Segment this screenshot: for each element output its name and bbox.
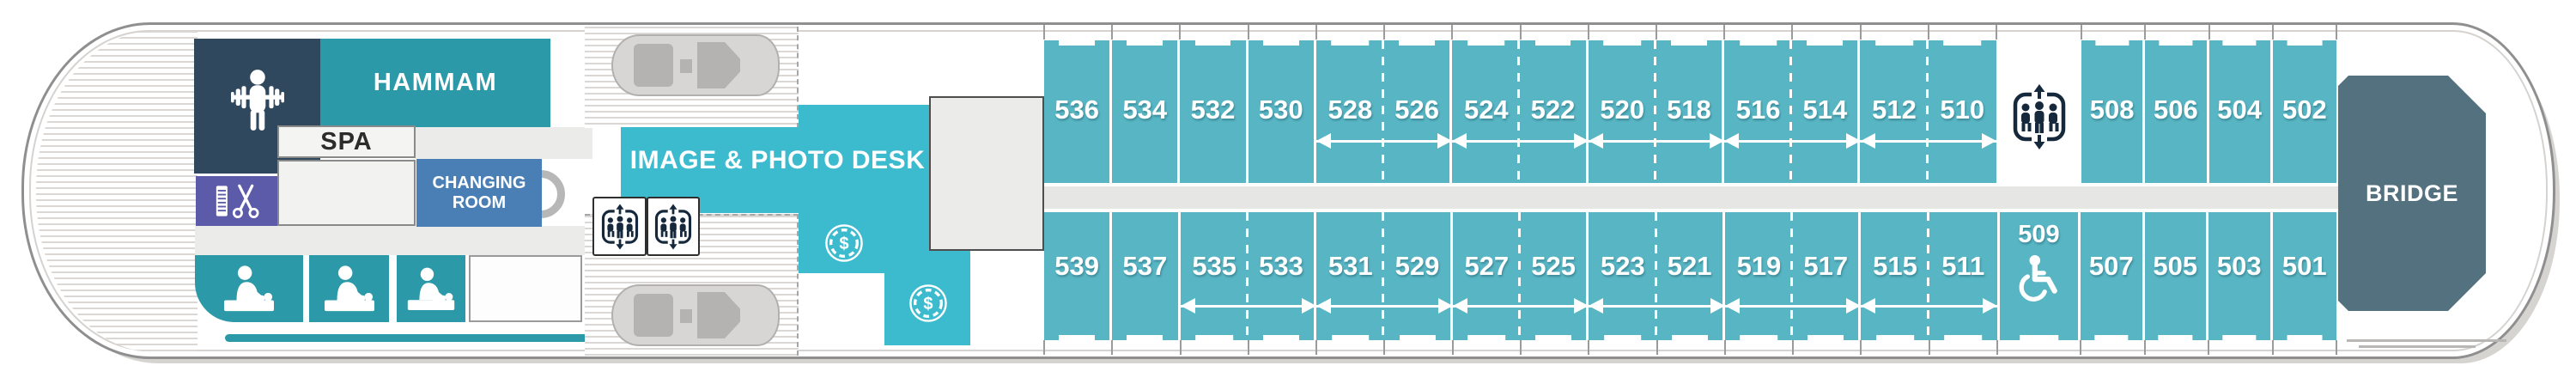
bulkhead-tick	[1383, 340, 1385, 355]
bulkhead-tick	[2336, 25, 2337, 40]
bulkhead-tick	[1723, 25, 1725, 40]
bulkhead-tick	[1588, 25, 1589, 40]
cabin-deck: 509 536534532530528526524522520518516514…	[0, 0, 2576, 390]
bulkhead-tick	[1043, 25, 1045, 40]
connecting-cabins-arrow	[1316, 140, 1996, 143]
bulkhead-tick	[1111, 25, 1113, 40]
cabin-527[interactable]: 527	[1453, 212, 1521, 340]
bulkhead-tick	[1315, 340, 1317, 355]
bulkhead-tick	[1724, 340, 1726, 355]
cabin-523[interactable]: 523	[1589, 212, 1656, 340]
bulkhead-tick	[1656, 340, 1658, 355]
cabin-519[interactable]: 519	[1725, 212, 1793, 340]
cabin-525[interactable]: 525	[1521, 212, 1589, 340]
arrowhead-icon	[1983, 298, 1997, 314]
bulkhead-tick	[1451, 25, 1453, 40]
bulkhead-tick	[1248, 340, 1249, 355]
bulkhead-tick	[1656, 25, 1657, 40]
cabin-503[interactable]: 503	[2208, 212, 2273, 340]
cabin-504[interactable]: 504	[2209, 40, 2273, 183]
arrowhead-icon	[1453, 298, 1467, 314]
cabin-502[interactable]: 502	[2273, 40, 2336, 183]
arrowhead-icon	[1316, 133, 1331, 149]
arrowhead-icon	[1302, 298, 1316, 314]
arrowhead-icon	[1846, 298, 1861, 314]
arrowhead-icon	[1861, 298, 1875, 314]
bulkhead-tick	[1520, 25, 1522, 40]
cabin-534[interactable]: 534	[1112, 40, 1180, 183]
bulkhead-tick	[2080, 340, 2081, 355]
arrowhead-icon	[1438, 298, 1453, 314]
cabin-520[interactable]: 520	[1589, 40, 1656, 183]
arrowhead-icon	[1574, 133, 1589, 149]
cabin-notch	[2020, 335, 2059, 340]
elevator-icon	[600, 203, 640, 251]
bulkhead-tick	[1111, 340, 1113, 355]
elevator	[2004, 82, 2075, 151]
cabin-row: 5365345325305285265245225205185165145125…	[1044, 40, 1996, 183]
bow-deck-line	[2359, 345, 2476, 348]
cabin-522[interactable]: 522	[1520, 40, 1588, 183]
cabin-511[interactable]: 511	[1929, 212, 1997, 340]
bulkhead-tick	[1383, 25, 1385, 40]
arrowhead-icon	[1589, 133, 1603, 149]
bulkhead-tick	[1315, 25, 1317, 40]
bulkhead-tick	[1588, 340, 1589, 355]
cabin-row: 5395375355335315295275255235215195175155…	[1044, 212, 1997, 340]
cabin-505[interactable]: 505	[2145, 212, 2209, 340]
cabin-508[interactable]: 508	[2081, 40, 2145, 183]
elevator	[592, 197, 647, 256]
elevator	[647, 197, 700, 256]
bulkhead-tick	[2272, 25, 2274, 40]
arrowhead-icon	[1725, 298, 1740, 314]
bulkhead-tick	[1248, 25, 1249, 40]
bulkhead-tick	[2144, 25, 2146, 40]
arrowhead-icon	[1452, 133, 1467, 149]
elevator-icon	[653, 203, 693, 251]
cabin-517[interactable]: 517	[1793, 212, 1861, 340]
arrowhead-icon	[1724, 133, 1739, 149]
cabin-529[interactable]: 529	[1384, 212, 1452, 340]
stair-block	[929, 96, 1044, 251]
cabin-532[interactable]: 532	[1180, 40, 1248, 183]
cabin-509[interactable]: 509	[1997, 212, 2078, 340]
bulkhead-tick	[2144, 340, 2146, 355]
cabin-536[interactable]: 536	[1044, 40, 1112, 183]
arrowhead-icon	[1710, 133, 1724, 149]
cabin-514[interactable]: 514	[1792, 40, 1860, 183]
cabin-501[interactable]: 501	[2273, 212, 2337, 340]
cabin-510[interactable]: 510	[1929, 40, 1996, 183]
arrowhead-icon	[1861, 133, 1875, 149]
arrowhead-icon	[1181, 298, 1195, 314]
bridge-label: BRIDGE	[2366, 180, 2458, 207]
bulkhead-tick	[1452, 340, 1454, 355]
arrowhead-icon	[1846, 133, 1861, 149]
cabin-row: 508506504502	[2081, 40, 2336, 183]
cabin-521[interactable]: 521	[1657, 212, 1725, 340]
cabin-512[interactable]: 512	[1860, 40, 1928, 183]
bulkhead-tick	[1860, 340, 1862, 355]
cabin-531[interactable]: 531	[1316, 212, 1384, 340]
bulkhead-tick	[1929, 340, 1930, 355]
bulkhead-tick	[1791, 25, 1793, 40]
bulkhead-tick	[2208, 340, 2209, 355]
cabin-524[interactable]: 524	[1452, 40, 1520, 183]
cabin-516[interactable]: 516	[1724, 40, 1792, 183]
bulkhead-tick	[1043, 340, 1045, 355]
bridge: BRIDGE	[2338, 76, 2486, 311]
cabin-528[interactable]: 528	[1316, 40, 1384, 183]
cabin-515[interactable]: 515	[1861, 212, 1929, 340]
bulkhead-tick	[1996, 340, 1998, 355]
bulkhead-tick	[1179, 25, 1181, 40]
cabin-row: 507505503501	[2081, 212, 2336, 340]
wheelchair-icon	[2018, 253, 2061, 302]
deck-plan: HAMMAM SPA CHANGING ROOM	[0, 0, 2576, 390]
bulkhead-tick	[2081, 25, 2082, 40]
arrowhead-icon	[1574, 298, 1589, 314]
cabin-530[interactable]: 530	[1249, 40, 1316, 183]
bow-deck-line	[2347, 339, 2506, 342]
bulkhead-tick	[2208, 25, 2210, 40]
cabin-539[interactable]: 539	[1044, 212, 1112, 340]
elevator-icon	[2011, 84, 2068, 149]
cabin-533[interactable]: 533	[1249, 212, 1316, 340]
arrowhead-icon	[1589, 298, 1603, 314]
arrowhead-icon	[1982, 133, 1996, 149]
cabin-507[interactable]: 507	[2081, 212, 2145, 340]
arrowhead-icon	[1437, 133, 1452, 149]
bulkhead-tick	[2336, 340, 2337, 355]
bulkhead-tick	[1520, 340, 1522, 355]
cabin-535[interactable]: 535	[1181, 212, 1249, 340]
bulkhead-tick	[1792, 340, 1794, 355]
arrowhead-icon	[1316, 298, 1331, 314]
cabin-526[interactable]: 526	[1384, 40, 1452, 183]
cabin-537[interactable]: 537	[1112, 212, 1180, 340]
arrowhead-icon	[1710, 298, 1725, 314]
bulkhead-tick	[1180, 340, 1182, 355]
cabin-number: 509	[2018, 222, 2059, 247]
cabin-506[interactable]: 506	[2145, 40, 2208, 183]
bulkhead-tick	[1860, 25, 1862, 40]
bulkhead-tick	[1996, 25, 1997, 40]
cabin-518[interactable]: 518	[1656, 40, 1724, 183]
bulkhead-tick	[1928, 25, 1929, 40]
bulkhead-tick	[2272, 340, 2274, 355]
